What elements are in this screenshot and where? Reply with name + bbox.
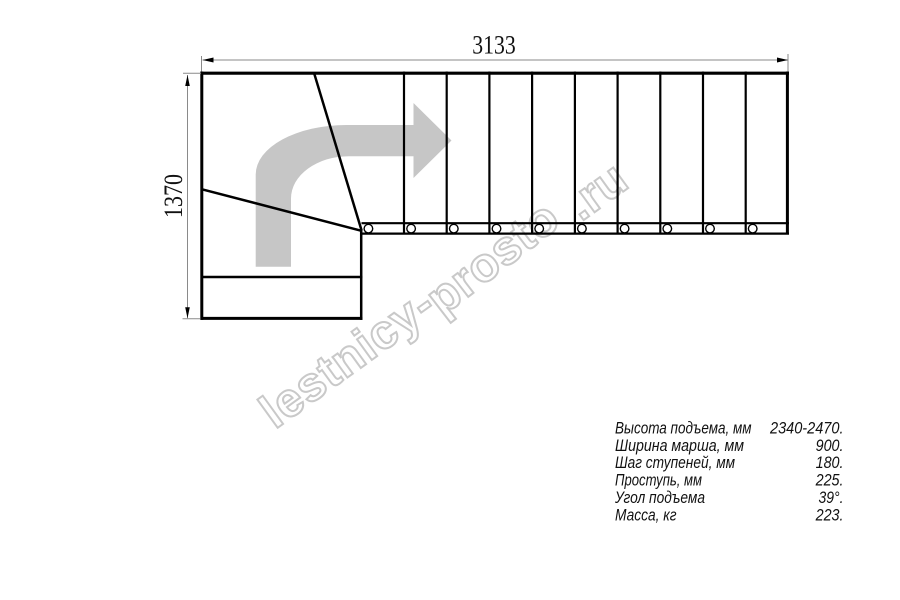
svg-text:2340-2470.: 2340-2470. [769, 420, 843, 438]
svg-text:223.: 223. [815, 506, 844, 524]
svg-text:Угол подъема: Угол подъема [614, 489, 705, 507]
svg-text:Проступь, мм: Проступь, мм [615, 472, 702, 490]
svg-text:39°.: 39°. [819, 489, 844, 507]
svg-text:Масса, кг: Масса, кг [615, 506, 677, 524]
svg-text:225.: 225. [815, 472, 844, 490]
svg-text:Ширина марша, мм: Ширина марша, мм [615, 437, 744, 455]
svg-text:Высота подъема, мм: Высота подъема, мм [615, 420, 752, 438]
svg-text:3133: 3133 [472, 31, 516, 60]
svg-text:180.: 180. [816, 454, 844, 472]
svg-text:900.: 900. [816, 437, 844, 455]
svg-text:Шаг ступеней, мм: Шаг ступеней, мм [615, 454, 735, 472]
svg-text:1370: 1370 [159, 174, 188, 218]
